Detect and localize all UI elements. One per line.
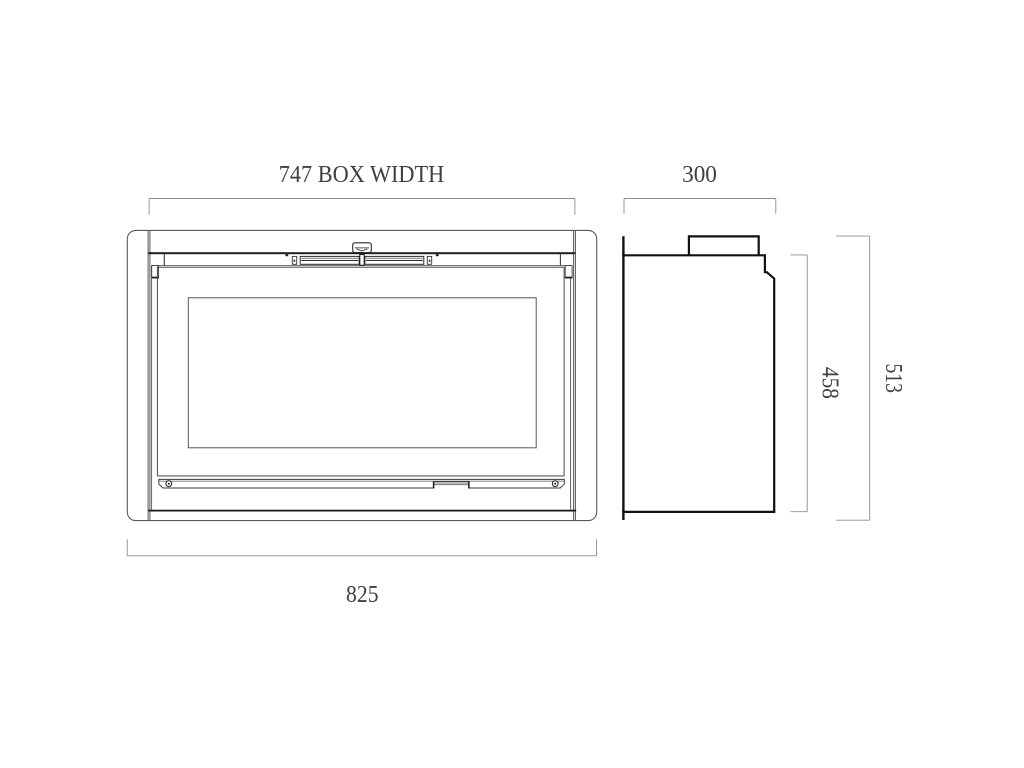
svg-text:458: 458: [816, 367, 843, 399]
svg-text:825: 825: [346, 581, 379, 608]
svg-text:300: 300: [682, 161, 717, 188]
svg-text:747 BOX WIDTH: 747 BOX WIDTH: [279, 162, 445, 188]
svg-text:513: 513: [880, 363, 907, 393]
